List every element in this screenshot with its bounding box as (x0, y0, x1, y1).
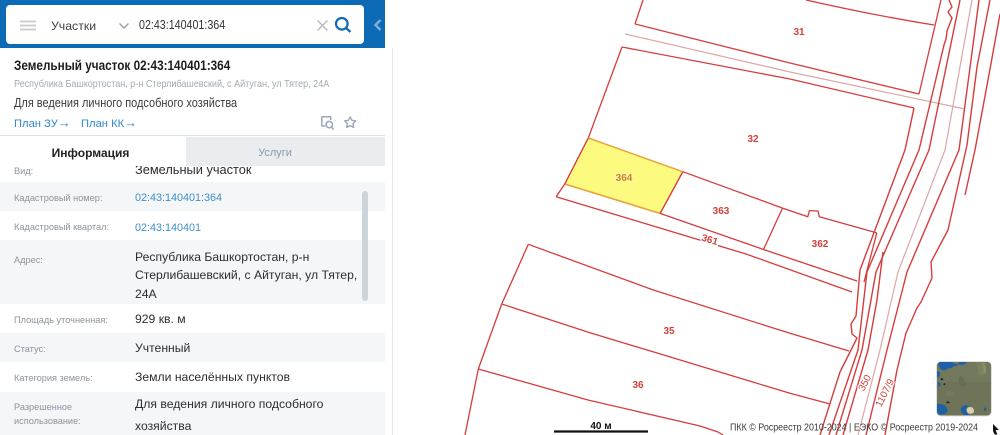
svg-text:31: 31 (793, 27, 805, 38)
svg-text:1107/9: 1107/9 (874, 377, 898, 409)
svg-text:362: 362 (812, 239, 829, 250)
svg-text:35: 35 (663, 326, 675, 337)
svg-text:32: 32 (747, 134, 759, 145)
svg-text:ПКК © Росреестр 2010-2024 | ЕЭ: ПКК © Росреестр 2010-2024 | ЕЭКО © Росре… (730, 423, 979, 434)
svg-text:350: 350 (857, 373, 875, 393)
svg-text:364: 364 (616, 173, 633, 184)
svg-text:363: 363 (713, 206, 730, 217)
svg-text:40 м: 40 м (590, 421, 611, 432)
svg-text:36: 36 (632, 380, 644, 391)
svg-text:361: 361 (700, 233, 720, 249)
